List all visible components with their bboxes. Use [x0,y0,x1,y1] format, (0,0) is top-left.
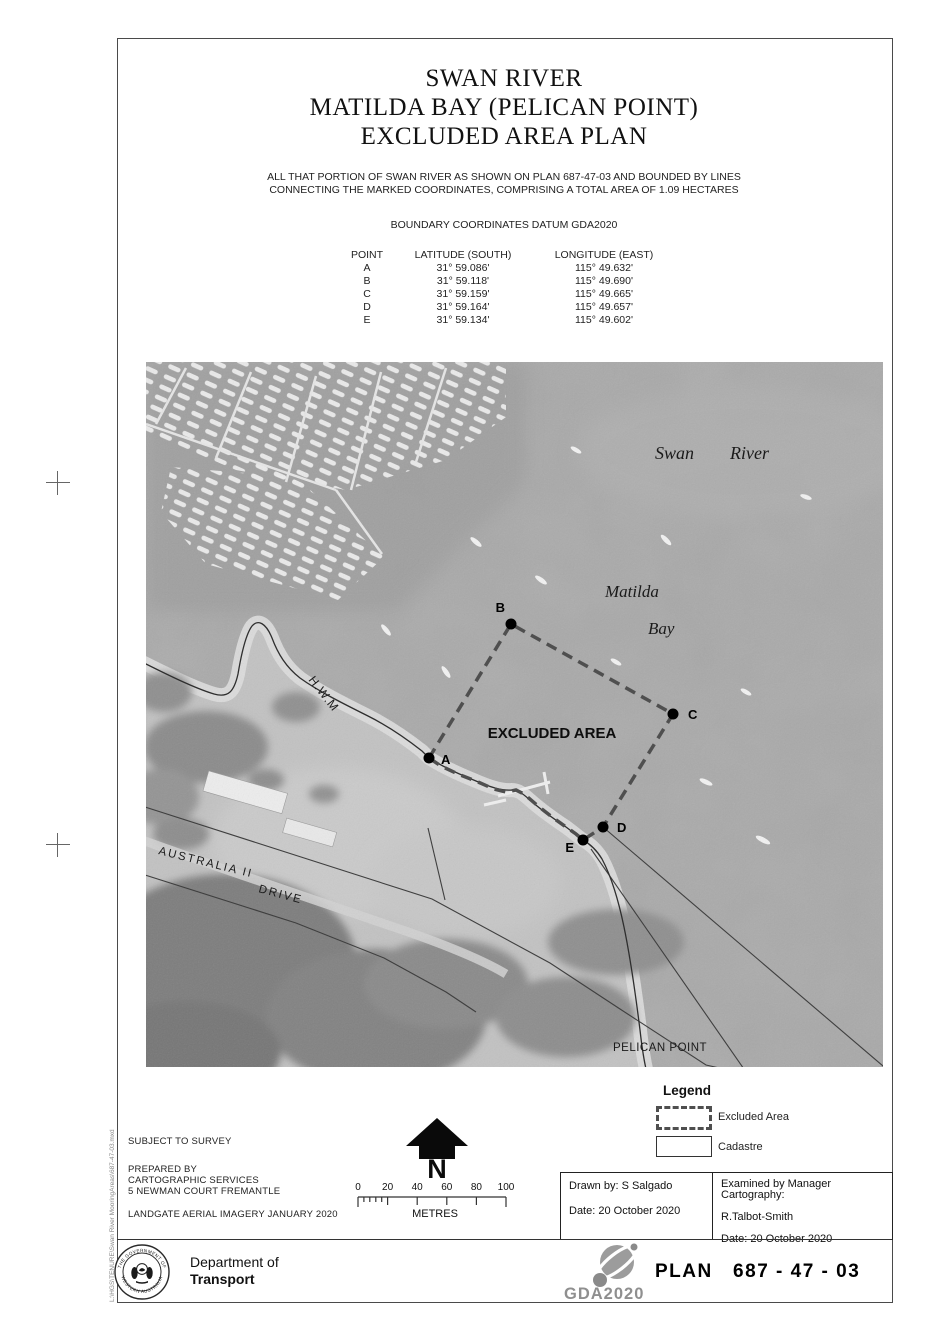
table-row: C 31° 59.159' 115° 49.665' [332,288,684,301]
point-c-marker [668,709,679,720]
scale-tick-0: 0 [355,1182,361,1193]
examined-by: Examined by Manager Cartography: [721,1179,892,1201]
bay-label: Bay [648,619,675,638]
drawn-by: Drawn by: S Salgado [569,1181,712,1192]
plan-page: SWAN RIVER MATILDA BAY (PELICAN POINT) E… [0,0,948,1341]
coordinates-header-row: POINT LATITUDE (SOUTH) LONGITUDE (EAST) [332,249,684,262]
registration-cross-icon [46,833,70,857]
point-e-marker [578,835,589,846]
plan-description: ALL THAT PORTION OF SWAN RIVER AS SHOWN … [117,171,891,196]
legend-item-excluded-area: Excluded Area [718,1111,789,1123]
scale-tick-100: 100 [498,1182,515,1193]
scale-unit-label: METRES [412,1208,458,1220]
point-a-marker [424,753,435,764]
excluded-area-label: EXCLUDED AREA [488,725,617,742]
datum-note: BOUNDARY COORDINATES DATUM GDA2020 [117,219,891,231]
coordinates-table: POINT LATITUDE (SOUTH) LONGITUDE (EAST) … [332,249,684,327]
scale-tick-20: 20 [382,1182,394,1193]
legend-item-cadastre: Cadastre [718,1141,763,1153]
title-block: Drawn by: S Salgado Date: 20 October 202… [560,1172,893,1240]
legend-title: Legend [663,1083,711,1098]
page-title: SWAN RIVER MATILDA BAY (PELICAN POINT) E… [117,64,891,151]
title-line-3: EXCLUDED AREA PLAN [117,122,891,151]
point-b-marker [506,619,517,630]
table-row: B 31° 59.118' 115° 49.690' [332,275,684,288]
point-e-label: E [565,840,574,855]
imagery-note: LANDGATE AERIAL IMAGERY JANUARY 2020 [128,1209,338,1220]
north-arrow: N [400,1116,474,1180]
aerial-map: A B C D E Swan River Matilda Bay H.W.M E… [146,362,883,1067]
point-d-marker [598,822,609,833]
table-row: E 31° 59.134' 115° 49.602' [332,314,684,327]
prepared-by-note: PREPARED BY [128,1164,197,1175]
subject-to-survey-note: SUBJECT TO SURVEY [128,1136,232,1147]
drawn-date: Date: 20 October 2020 [569,1206,712,1217]
registration-cross-icon [46,471,70,495]
footer-divider [117,1239,892,1240]
pelican-point-label: PELICAN POINT [613,1042,707,1054]
scale-bar: 0 20 40 60 80 100 METRES [348,1176,528,1220]
river-label: River [729,443,770,463]
cadastre-swatch [656,1136,712,1157]
examined-by-cell: Examined by Manager Cartography: R.Talbo… [713,1173,892,1239]
wa-government-crest: THE GOVERNMENT OF WESTERN AUSTRALIA [112,1242,172,1302]
scale-tick-60: 60 [441,1182,453,1193]
address-note: 5 NEWMAN COURT FREMANTLE [128,1186,280,1197]
transport: Transport [190,1271,279,1288]
point-c-label: C [688,707,698,722]
excluded-area-swatch [656,1106,712,1130]
scale-tick-80: 80 [471,1182,483,1193]
point-a-label: A [441,752,451,767]
cartographic-services-note: CARTOGRAPHIC SERVICES [128,1175,259,1186]
gda2020-logo: GDA2020 [560,1240,670,1306]
matilda-label: Matilda [604,582,659,601]
title-line-1: SWAN RIVER [117,64,891,93]
department-of: Department of [190,1254,279,1271]
table-row: A 31° 59.086' 115° 49.632' [332,262,684,275]
satellite-dot-icon [631,1244,638,1251]
north-arrow-icon [406,1118,468,1159]
point-d-label: D [617,820,626,835]
swan-label: Swan [655,443,694,463]
point-b-label: B [496,600,505,615]
plan-number: PLAN 687 - 47 - 03 [655,1261,860,1283]
examiner: R.Talbot-Smith [721,1212,892,1223]
scale-tick-40: 40 [412,1182,424,1193]
gda2020-label: GDA2020 [564,1285,644,1303]
file-path-text: L:\HGS\TENURE\Swan River MooringAreas\68… [109,1129,116,1302]
title-line-2: MATILDA BAY (PELICAN POINT) [117,93,891,122]
drawn-by-cell: Drawn by: S Salgado Date: 20 October 202… [561,1173,713,1239]
table-row: D 31° 59.164' 115° 49.657' [332,301,684,314]
department-logo-text: Department of Transport [190,1254,279,1288]
